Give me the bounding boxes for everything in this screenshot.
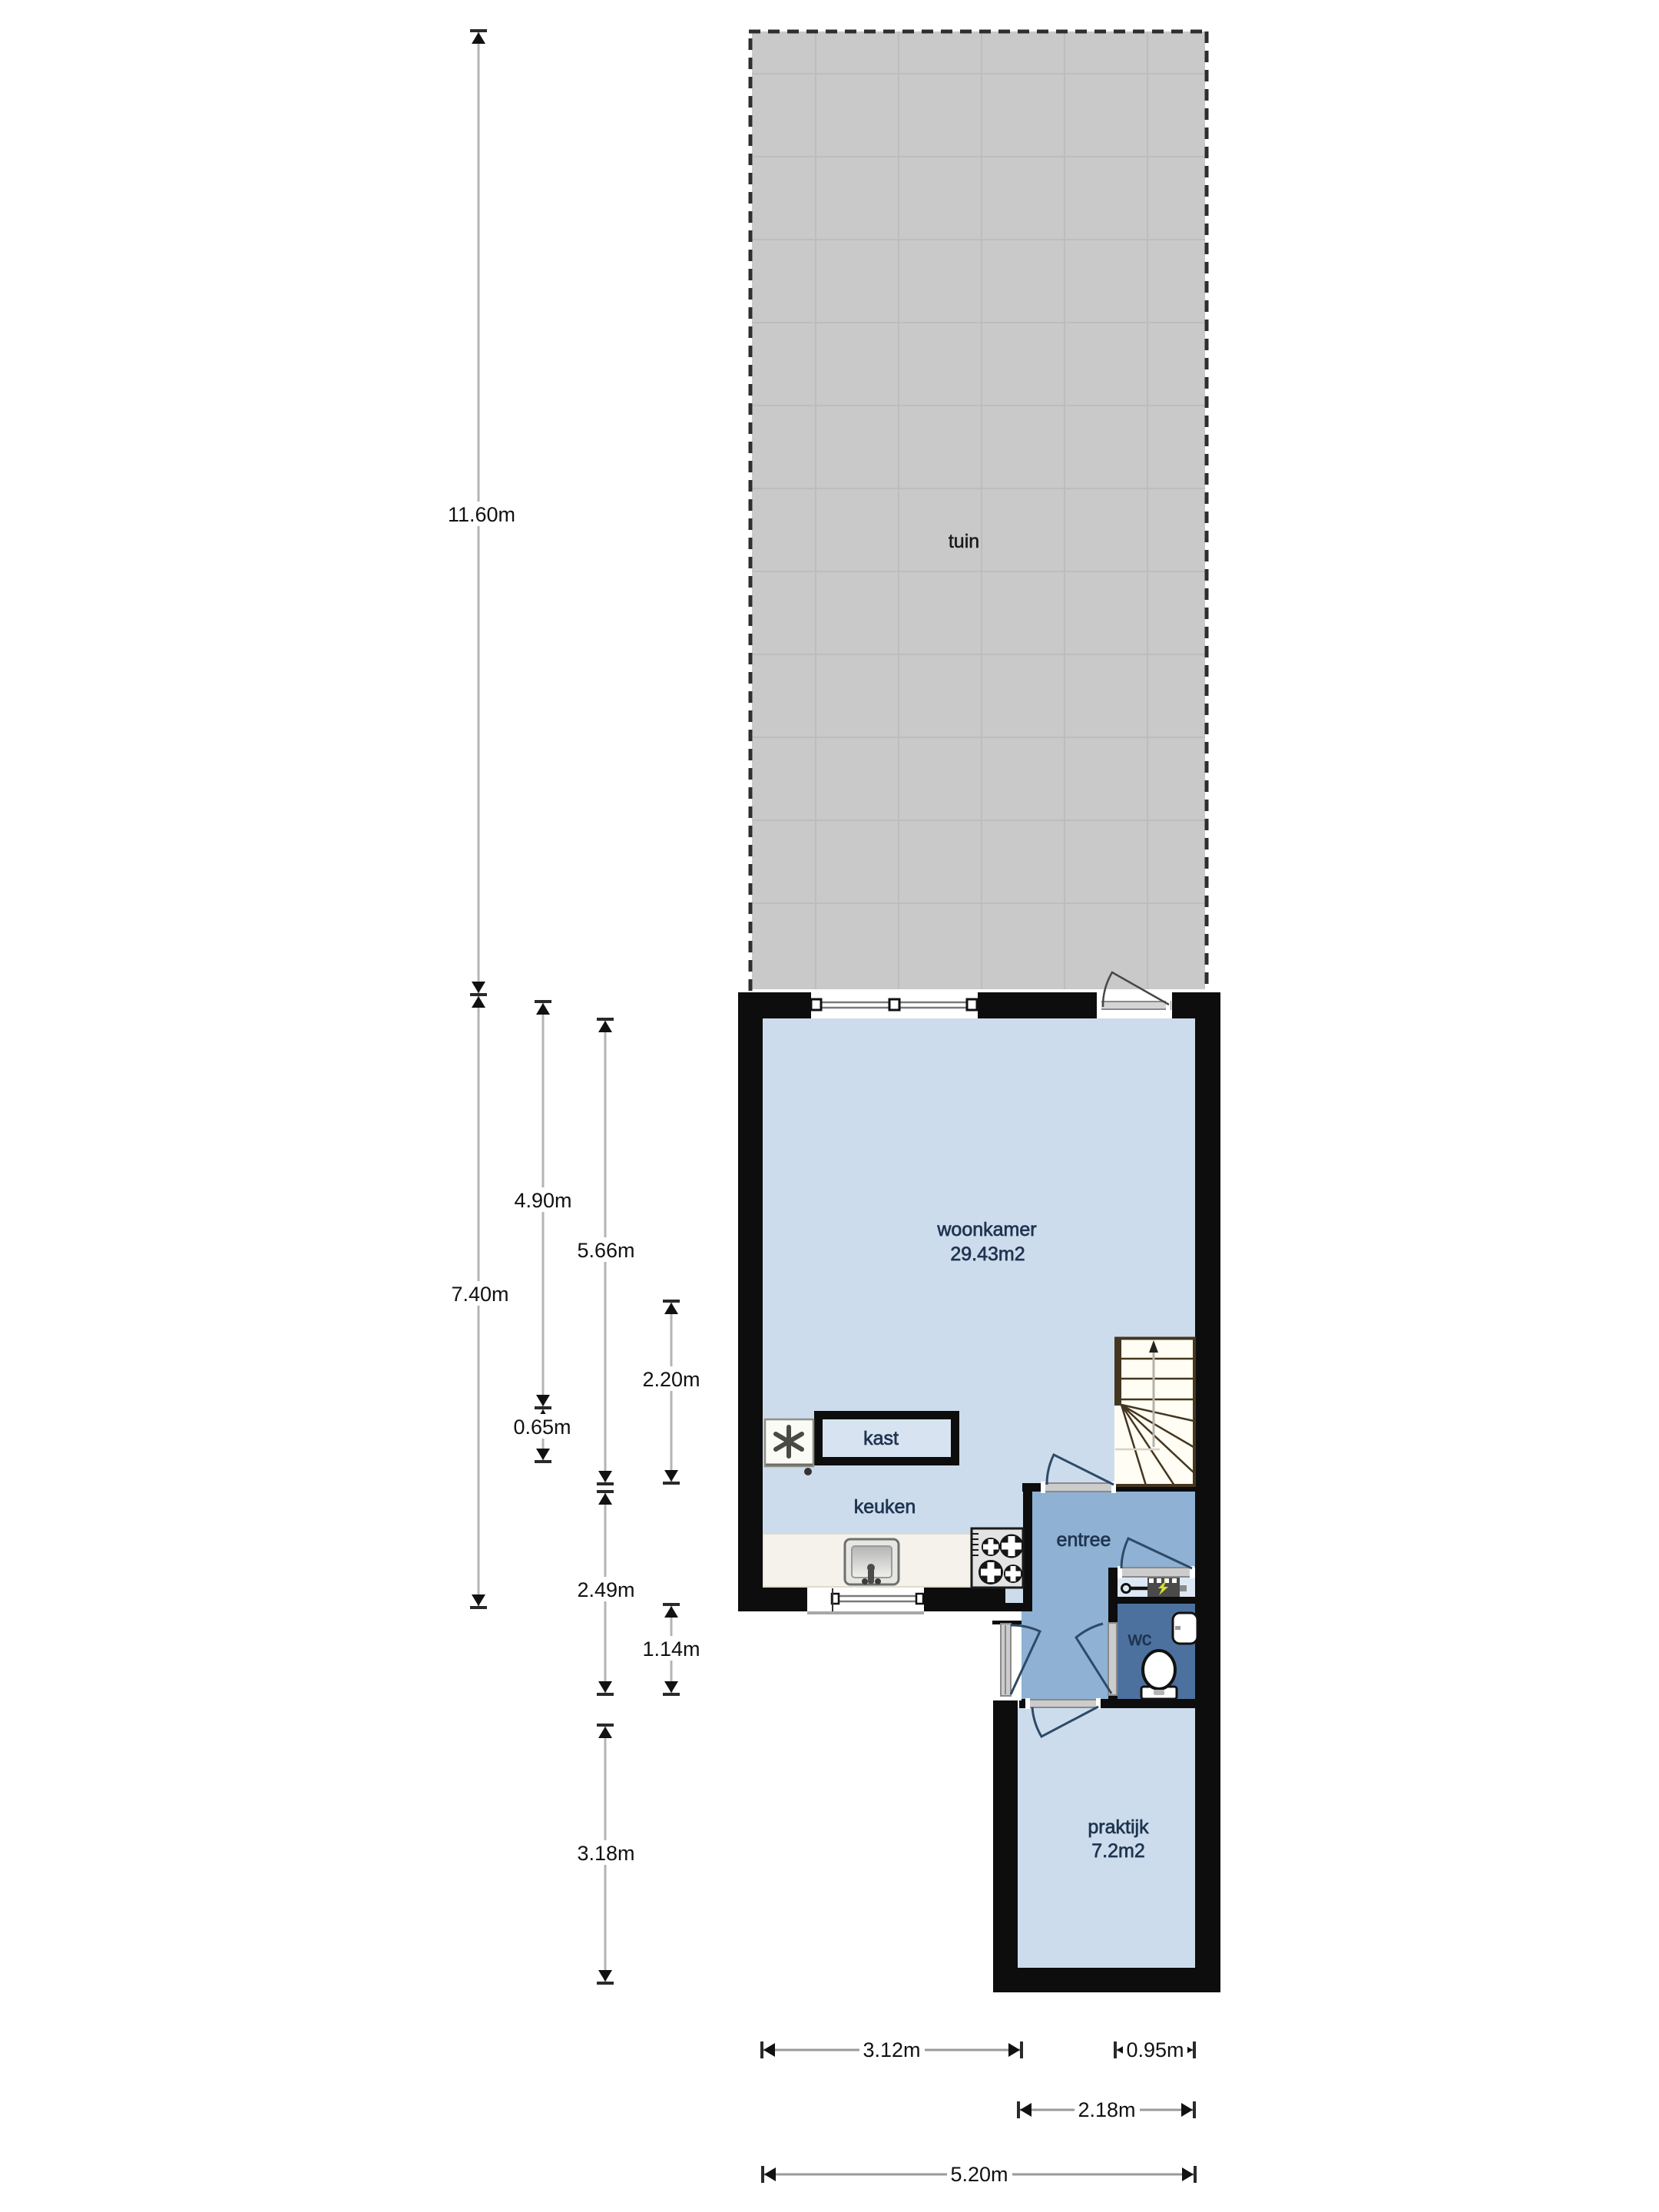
svg-text:2.18m: 2.18m xyxy=(1078,2098,1135,2121)
svg-text:5.66m: 5.66m xyxy=(577,1239,634,1262)
svg-text:wc: wc xyxy=(1128,1628,1152,1650)
svg-text:tuin: tuin xyxy=(949,531,979,552)
svg-text:3.18m: 3.18m xyxy=(577,1842,634,1865)
svg-text:7.2m2: 7.2m2 xyxy=(1091,1840,1144,1862)
svg-text:3.12m: 3.12m xyxy=(863,2038,920,2061)
svg-text:0.95m: 0.95m xyxy=(1126,2038,1184,2061)
svg-text:keuken: keuken xyxy=(854,1496,916,1518)
svg-text:7.40m: 7.40m xyxy=(451,1283,508,1306)
svg-text:praktijk: praktijk xyxy=(1088,1816,1149,1838)
svg-text:4.90m: 4.90m xyxy=(514,1189,571,1212)
svg-text:2.49m: 2.49m xyxy=(577,1578,634,1601)
svg-text:29.43m2: 29.43m2 xyxy=(950,1243,1025,1265)
svg-text:5.20m: 5.20m xyxy=(950,2163,1008,2186)
svg-text:11.60m: 11.60m xyxy=(448,503,515,526)
svg-text:entree: entree xyxy=(1057,1529,1111,1551)
svg-text:1.14m: 1.14m xyxy=(642,1637,700,1661)
svg-text:kast: kast xyxy=(863,1428,899,1449)
svg-text:0.65m: 0.65m xyxy=(513,1416,571,1439)
svg-text:2.20m: 2.20m xyxy=(642,1368,700,1391)
svg-text:woonkamer: woonkamer xyxy=(936,1219,1036,1240)
